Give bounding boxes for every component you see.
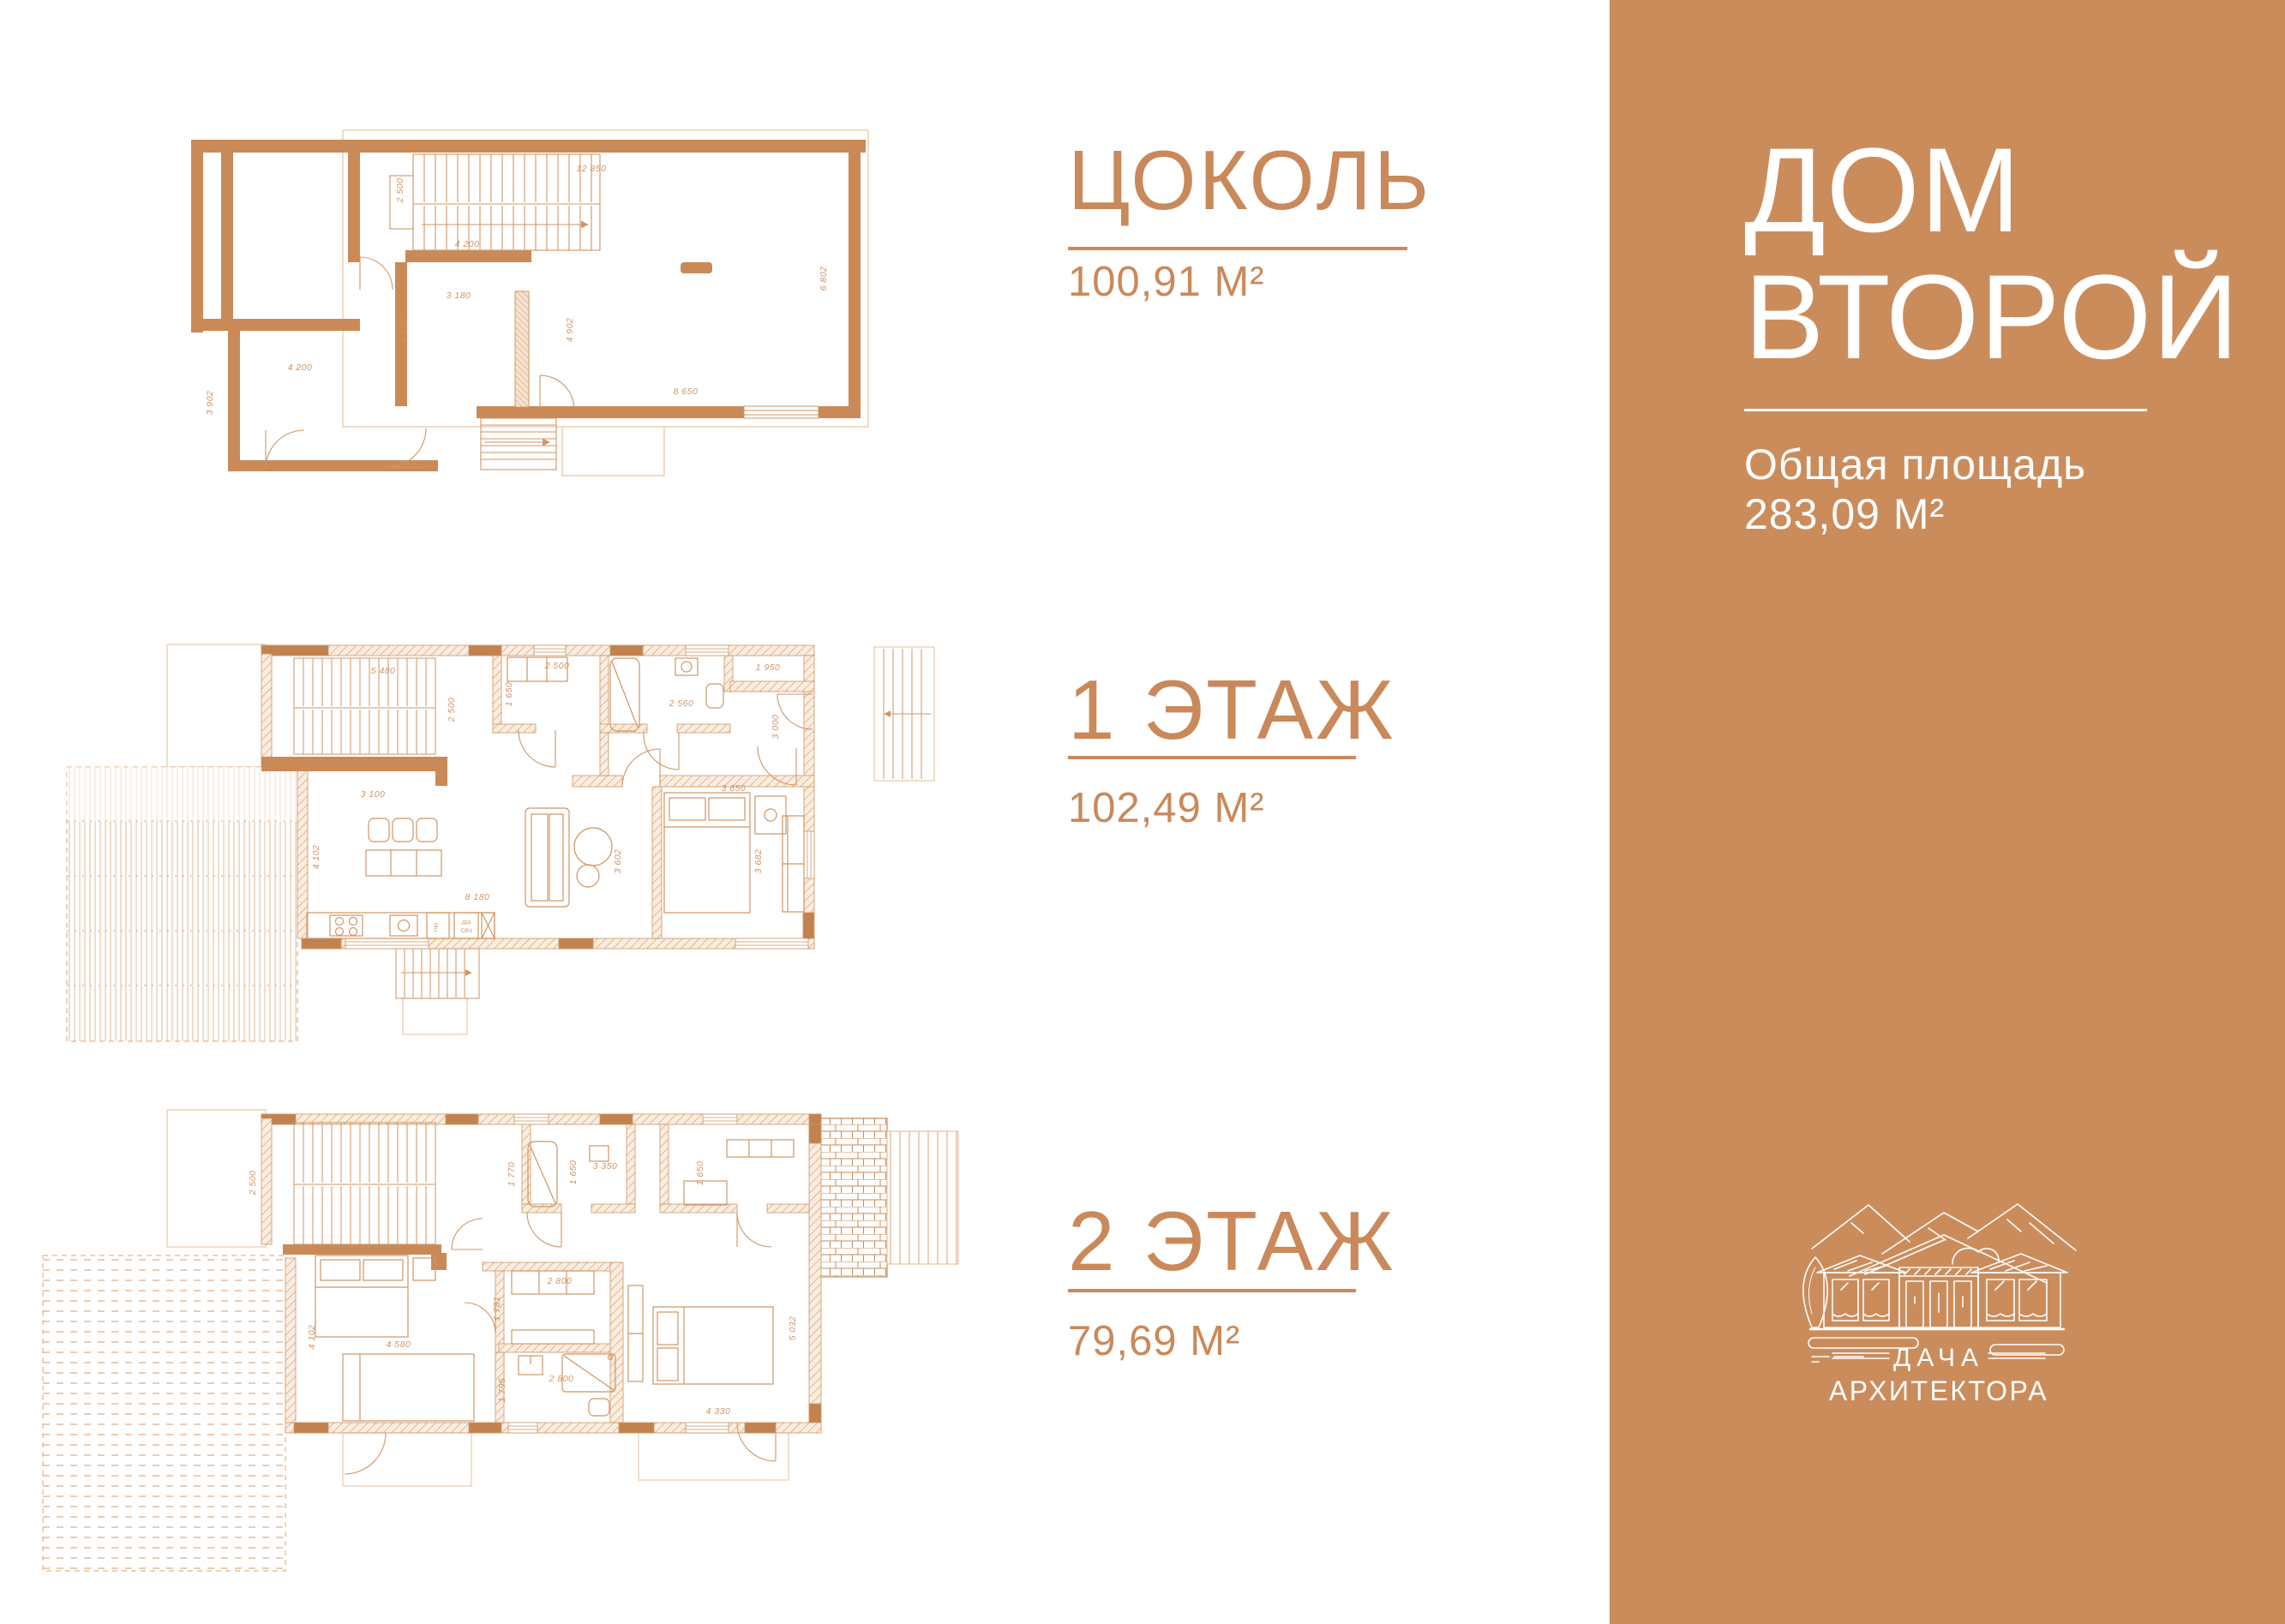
f1-int-walls <box>493 656 814 938</box>
bed-icon <box>664 793 750 913</box>
bed-icon <box>315 1255 408 1337</box>
brochure-page: 12 850 2 500 4 200 3 180 4 102 4 902 6 8… <box>0 0 2285 1624</box>
dim-label: 1 781 <box>492 1297 502 1321</box>
basement-title-rule <box>1068 247 1407 250</box>
basement-window <box>744 406 819 418</box>
total-area-label: Общая площадь <box>1744 439 2086 490</box>
floor1-title-rule <box>1068 756 1356 759</box>
dim-label: 3 602 <box>613 849 623 874</box>
dim-label: 6 802 <box>819 267 829 291</box>
dim-label: 2 800 <box>549 1374 574 1384</box>
dim-label: 1 795 <box>497 1378 507 1403</box>
dim-label: 5 480 <box>371 666 396 676</box>
dim-label: 8 650 <box>674 387 699 397</box>
nightstand-icon <box>755 796 786 834</box>
shower-icon <box>562 1354 615 1392</box>
f2-balcony <box>814 1118 958 1277</box>
dim-label: 4 902 <box>565 318 575 343</box>
total-area-value: 283,09 М² <box>1744 488 1945 540</box>
dim-label: 1 650 <box>504 682 514 707</box>
f1-entry-steps <box>884 649 931 779</box>
coffee-table-icon <box>574 828 612 866</box>
dim-label: 12 850 <box>576 164 606 174</box>
floor1-area: 102,49 М² <box>1068 783 1265 834</box>
dim-label: 2 560 <box>669 698 694 709</box>
f1-terrace <box>67 767 297 1041</box>
floor1-title: 1 ЭТАЖ <box>1068 668 1396 752</box>
dim-label: 3 100 <box>361 789 386 800</box>
dim-label: 3 350 <box>593 1161 618 1172</box>
couch-icon <box>343 1354 474 1421</box>
f1-stairs-down <box>396 949 479 998</box>
logo-line2: АРХИТЕКТОРА <box>1829 1375 2048 1406</box>
floor2-title: 2 ЭТАЖ <box>1068 1199 1396 1283</box>
mountains-icon <box>1812 1204 2076 1254</box>
sofa-icon <box>525 808 569 907</box>
dim-label: 5 032 <box>788 1316 798 1341</box>
kitchen-icon <box>307 913 495 938</box>
dim-label: 8 180 <box>465 892 490 902</box>
appliance-label: ПМ <box>434 923 440 932</box>
dim-label: 2 500 <box>248 1171 258 1196</box>
shaft <box>515 291 529 407</box>
f1-kitchen-labels: ПМ ДШ СВЧ <box>434 920 472 934</box>
toilet-icon <box>589 1399 609 1416</box>
dim-label: 1 950 <box>756 662 781 673</box>
table-icon <box>366 850 441 876</box>
dacha-arhitektora-logo: ДАЧА АРХИТЕКТОРА <box>1800 1194 2078 1410</box>
appliance-label: СВЧ <box>460 928 471 934</box>
toilet-icon <box>706 684 723 708</box>
dim-label: 1 650 <box>568 1160 579 1185</box>
dim-label: 3 000 <box>771 715 781 740</box>
cloud-icon <box>1952 1248 1999 1264</box>
dim-label: 4 330 <box>706 1406 731 1417</box>
dim-label: 4 102 <box>311 845 321 870</box>
house-title-line2: ВТОРОЙ <box>1744 257 2240 377</box>
sidebar-rule <box>1744 409 2147 411</box>
dim-label: 2 800 <box>547 1276 573 1286</box>
second-floor-plan: 2 500 1 770 1 650 3 350 1 650 2 800 1 78… <box>34 1101 1071 1594</box>
dim-label: 3 180 <box>447 291 471 301</box>
basement-outline <box>343 130 868 476</box>
house-title-line1: ДОМ <box>1744 130 2021 250</box>
first-floor-plan: ПМ ДШ СВЧ 5 480 2 500 2 500 1 650 2 560 … <box>51 634 1063 1046</box>
dim-label: 3 902 <box>205 391 215 416</box>
f1-doors <box>519 694 813 787</box>
basement-floor-plan: 12 850 2 500 4 200 3 180 4 102 4 902 6 8… <box>103 120 891 497</box>
basement-stairs-lower <box>481 418 556 470</box>
appliance-label: ДШ <box>462 920 471 926</box>
sink-icon <box>590 1146 609 1161</box>
sink-icon <box>675 658 698 675</box>
dim-label: 1 650 <box>695 1161 705 1186</box>
stools-icon <box>369 818 437 842</box>
house-right-icon <box>1971 1254 2067 1327</box>
house-center-icon <box>1899 1267 1978 1327</box>
basement-stairs-upper <box>390 154 600 250</box>
dim-label: 2 500 <box>447 698 457 723</box>
floor2-area: 79,69 М² <box>1068 1316 1240 1367</box>
dim-label: 4 102 <box>307 1325 317 1350</box>
dim-label: 4 102 <box>399 318 410 343</box>
basement-area: 100,91 М² <box>1068 257 1265 308</box>
dim-label: 4 580 <box>387 1339 411 1350</box>
f2-stair-block <box>261 1118 447 1270</box>
wardrobe-icon <box>628 1285 643 1381</box>
f2-terrace <box>43 1255 285 1571</box>
house-left-icon <box>1817 1255 1906 1327</box>
f2-int-walls <box>483 1124 809 1423</box>
f1-stair-block <box>261 654 447 786</box>
column <box>681 262 712 273</box>
f2-ext-walls <box>261 1114 821 1433</box>
dim-label: 1 770 <box>507 1162 517 1187</box>
dim-label: 4 200 <box>288 363 313 373</box>
dim-label: 4 200 <box>455 239 480 249</box>
bed-icon <box>653 1307 773 1384</box>
basement-title: ЦОКОЛЬ <box>1068 138 1431 222</box>
dim-label: 2 500 <box>395 178 405 204</box>
floor2-title-rule <box>1068 1289 1356 1292</box>
dim-label: 3 682 <box>753 849 764 874</box>
dim-label: 2 500 <box>544 661 570 671</box>
logo-line1: ДАЧА <box>1893 1344 1984 1372</box>
dim-label: 3 650 <box>722 783 747 794</box>
